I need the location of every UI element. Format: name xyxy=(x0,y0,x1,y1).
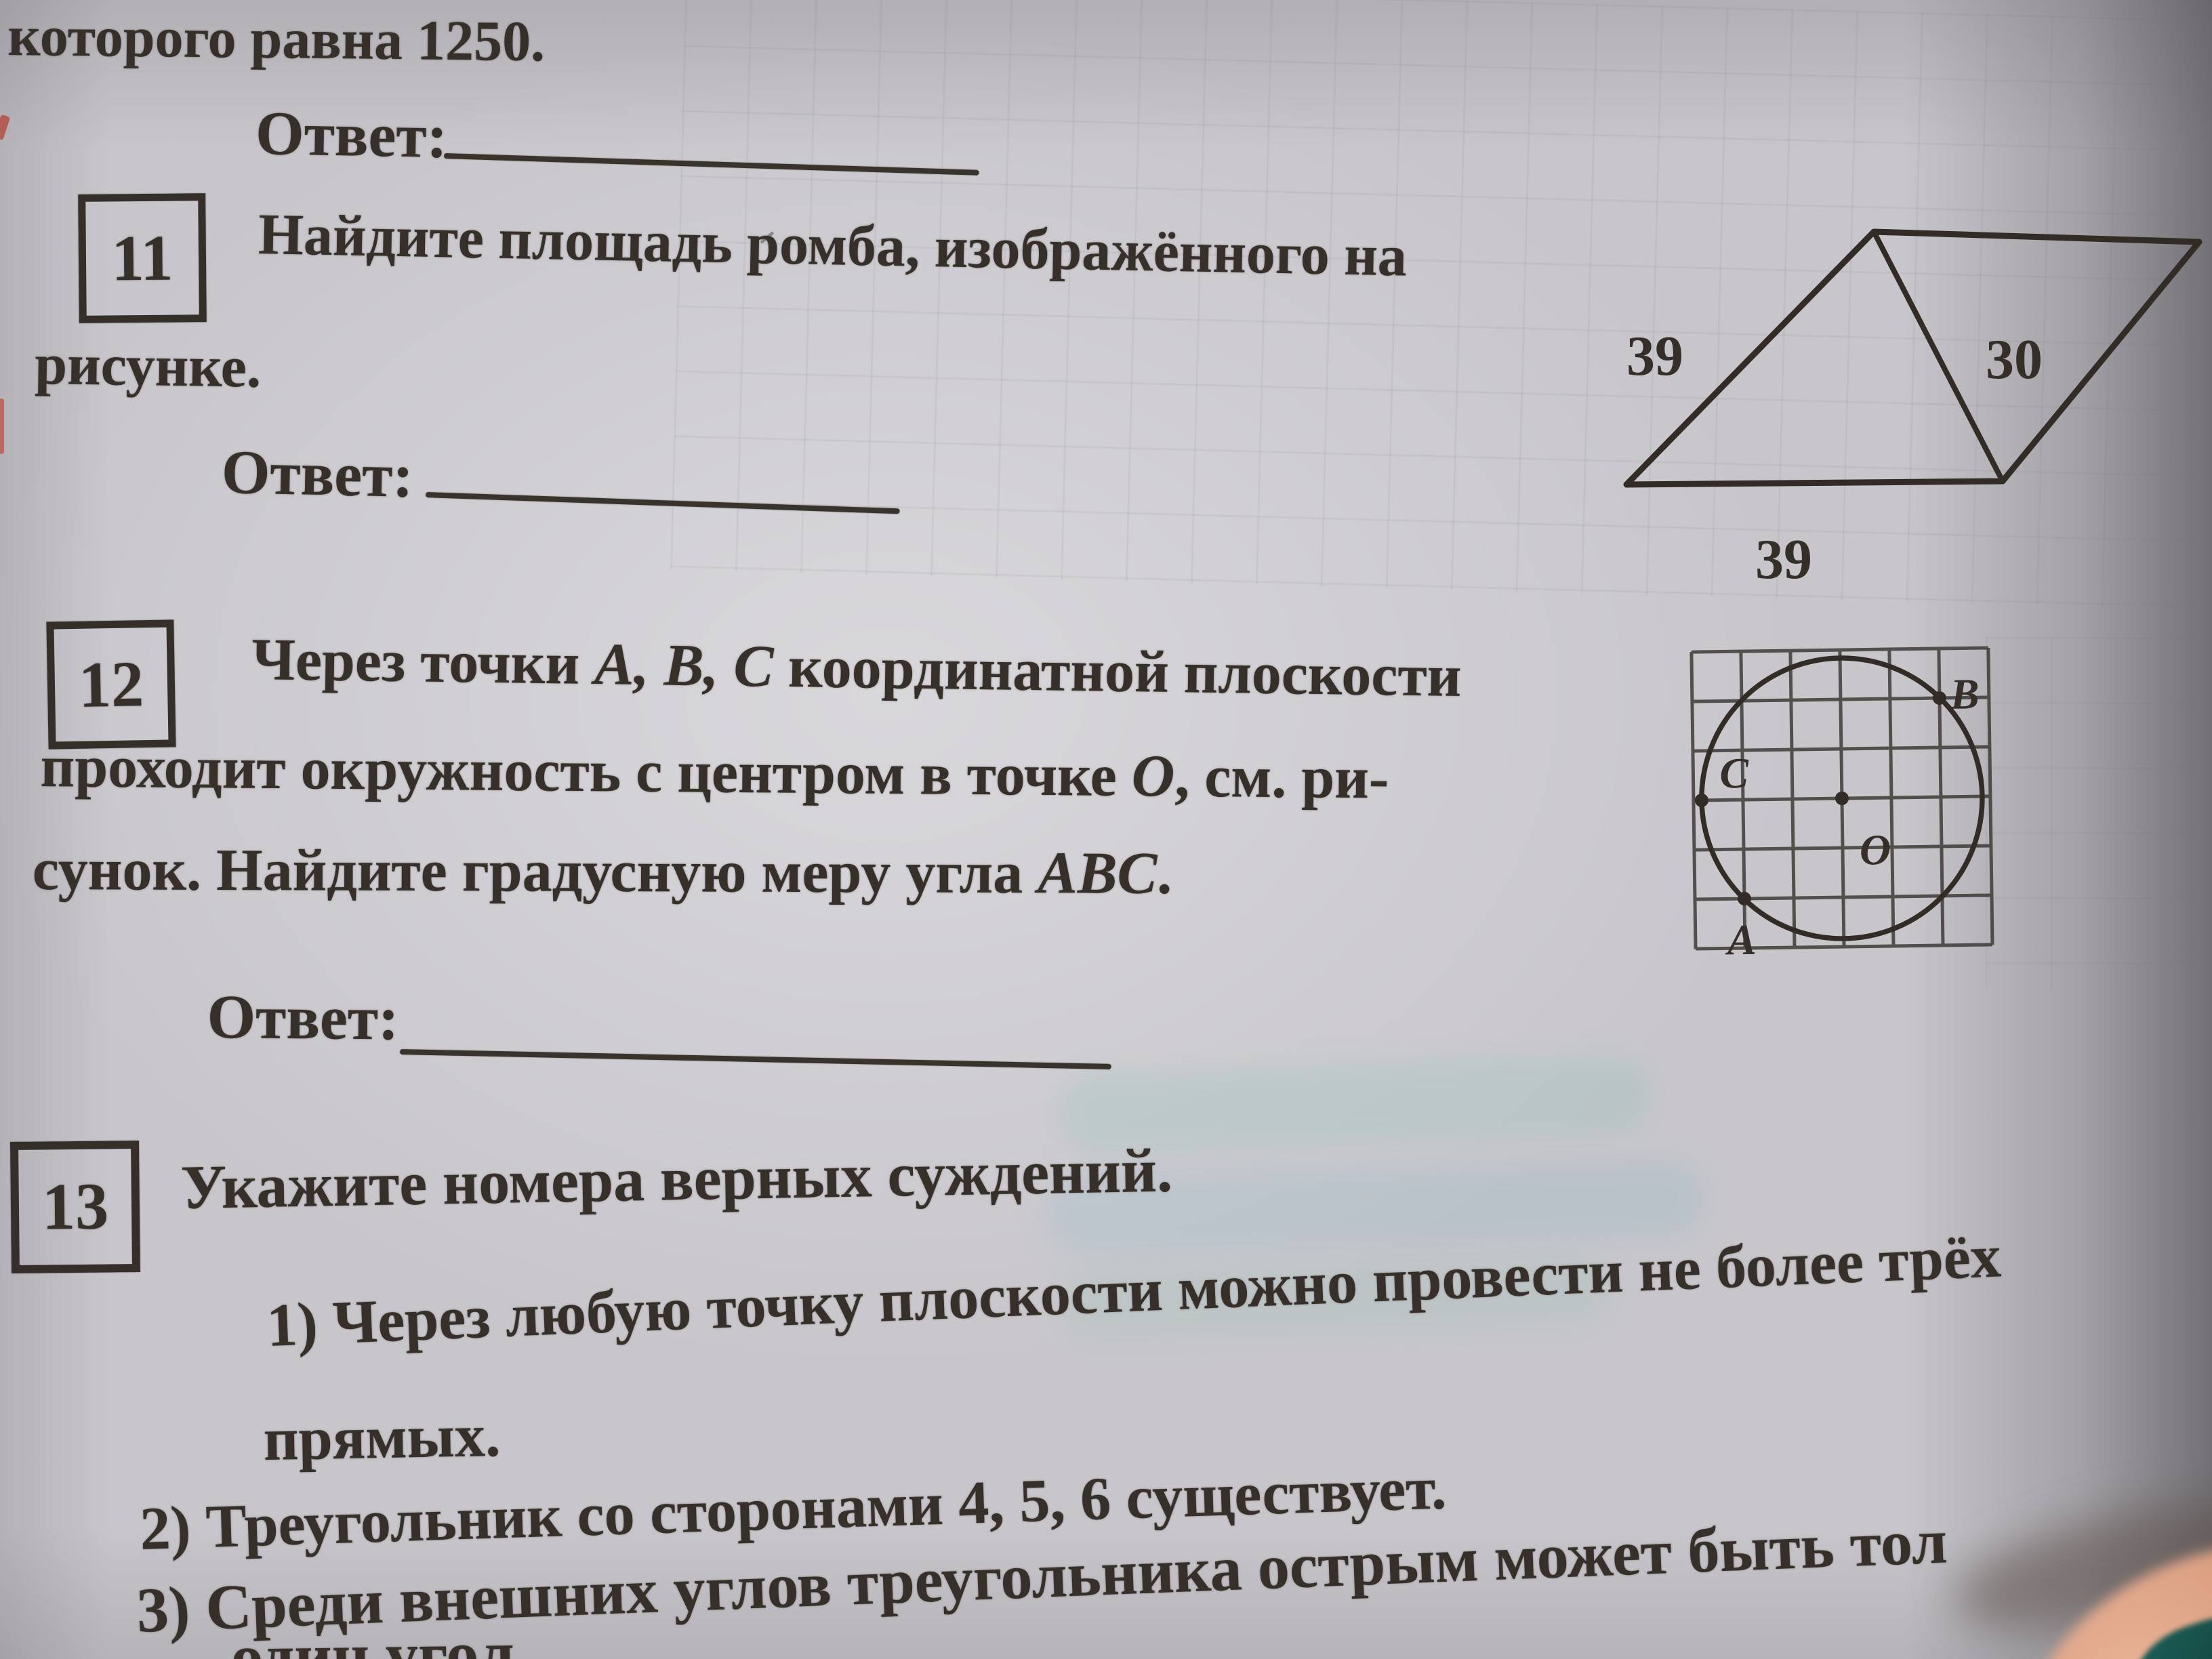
red-edge-mark-2 xyxy=(0,398,4,454)
point-c-dot xyxy=(1695,794,1708,807)
problem-11-text-line1: Найдите площадь ромба, изображённого на xyxy=(258,205,1407,285)
rhombus-diagonal xyxy=(1874,232,2003,481)
rhombus-diagonal-label: 30 xyxy=(1986,328,2043,391)
problem-12-line1-points: A, B, C xyxy=(594,632,773,700)
red-edge-mark-1 xyxy=(0,115,10,141)
problem-12-text-line3: сунок. Найдите градусную меру угла ABC. xyxy=(33,840,1172,904)
rhombus-bottom-side-label: 39 xyxy=(1755,528,1812,583)
problem-11-number-box: 11 xyxy=(78,193,207,323)
prev-problem-answer-line xyxy=(444,153,979,176)
point-a-label: A xyxy=(1724,916,1757,963)
problem-12-line1-pre: Через точки xyxy=(251,627,595,697)
showthrough-grid-right xyxy=(1986,637,2212,989)
prev-problem-answer-label: Ответ: xyxy=(255,102,448,167)
problem-11-number: 11 xyxy=(111,226,173,291)
problem-13-title: Укажите номера верных суждений. xyxy=(180,1139,1173,1218)
problem-12-line2-post: , см. ри- xyxy=(1174,744,1389,812)
point-c-label: C xyxy=(1719,749,1750,798)
rhombus-outline xyxy=(1626,232,2199,485)
problem-12-text-line1: Через точки A, B, C координатной плоскос… xyxy=(251,630,1462,707)
problem-13-number: 13 xyxy=(41,1173,108,1240)
rhombus-left-side-label: 39 xyxy=(1626,325,1683,388)
problem-12-line3-pre: сунок. Найдите градусную меру угла xyxy=(33,837,1038,906)
problem-13-item1-line1: 1) Через любую точку плоскости можно про… xyxy=(266,1226,2002,1357)
problem-12-answer-line xyxy=(400,1049,1111,1069)
problem-12-line1-post: координатной плоскости xyxy=(773,634,1462,710)
problem-12-line3-angle: ABC xyxy=(1038,840,1157,907)
problem-12-answer-label: Ответ: xyxy=(207,985,399,1049)
point-o-label: O xyxy=(1860,825,1891,874)
problem-11-text-line2: рисунке. xyxy=(35,335,262,396)
problem-11-answer-line xyxy=(426,492,900,514)
problem-13-item1-line2: прямых. xyxy=(263,1406,501,1471)
point-o-dot xyxy=(1835,792,1849,805)
problem-12-number: 12 xyxy=(78,651,144,718)
problem-12-line2-point: O xyxy=(1131,743,1174,810)
problem-12-number-box: 12 xyxy=(46,619,176,749)
problem-12-line3-post: . xyxy=(1157,841,1172,907)
problem-12-line2-pre: проходит окружность с центром в точке xyxy=(40,734,1132,809)
problem-13-overflow-line: один угол xyxy=(230,1621,515,1659)
point-b-label: B xyxy=(1949,670,1980,718)
rhombus-figure: 39 30 39 xyxy=(1610,202,2212,583)
problem-11-answer-label: Ответ: xyxy=(221,441,414,507)
prev-problem-tail-text: которого равна 1250. xyxy=(7,8,545,70)
circle-grid-figure: B C O A xyxy=(1684,640,2002,963)
problem-12-text-line2: проходит окружность с центром в точке O,… xyxy=(40,737,1389,808)
problem-13-number-box: 13 xyxy=(10,1141,140,1273)
textbook-page-photo: которого равна 1250. Ответ: 11 Найдите п… xyxy=(0,0,2212,1659)
